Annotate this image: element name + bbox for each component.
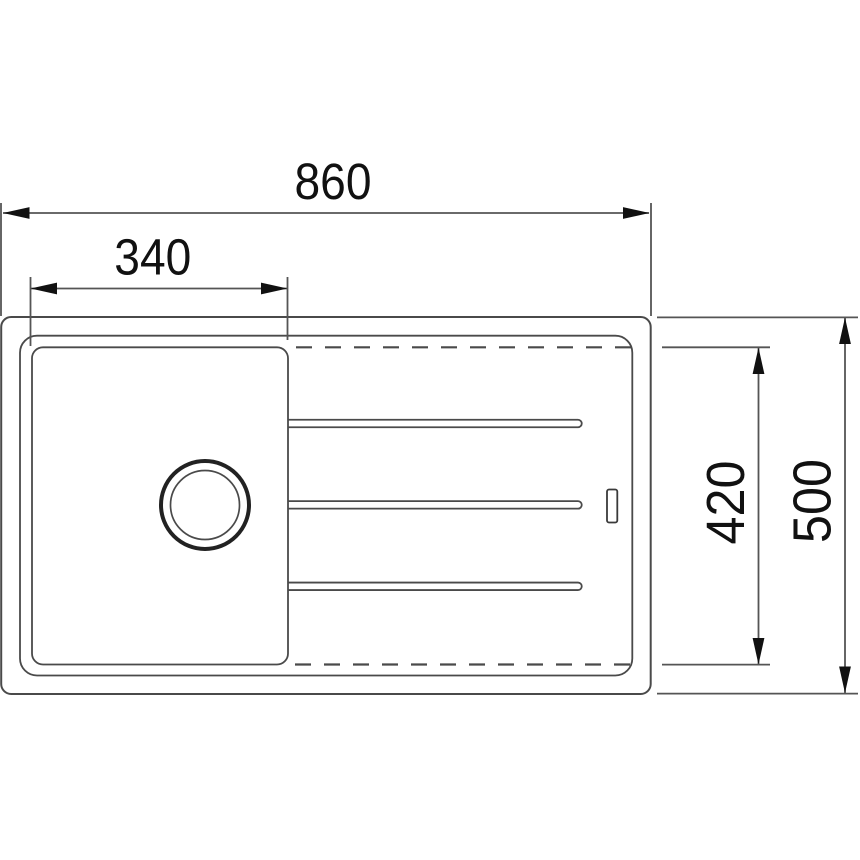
svg-text:420: 420 [696, 461, 756, 545]
svg-text:500: 500 [783, 459, 843, 543]
svg-text:340: 340 [114, 229, 191, 286]
svg-text:860: 860 [295, 153, 372, 210]
